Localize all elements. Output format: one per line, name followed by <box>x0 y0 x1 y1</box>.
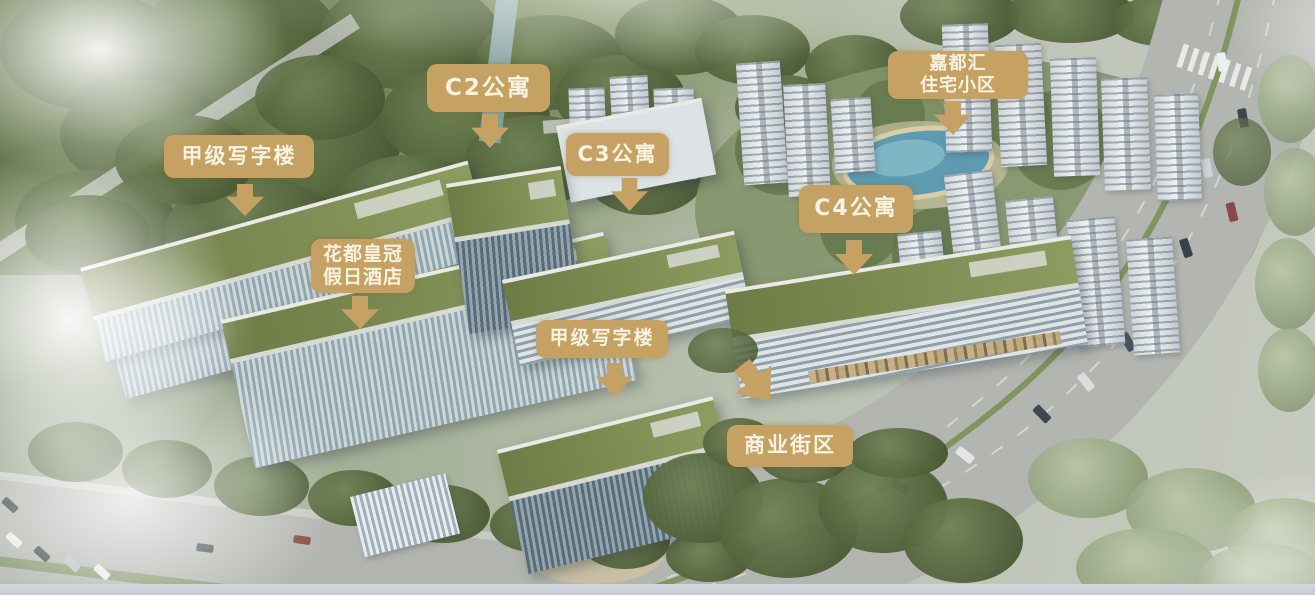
tree-cluster <box>1213 118 1271 186</box>
residential-tower <box>1154 93 1202 200</box>
label-huadu-crowne-plaza-hotel: 花都皇冠 假日酒店 <box>311 239 415 293</box>
aerial-rendering: 甲级写字楼 C2公寓 C3公寓 嘉都汇 住宅小区 C4公寓 花都皇冠 假日酒店 … <box>0 0 1315 595</box>
tree-cluster <box>848 428 948 478</box>
tree-cluster <box>1258 328 1315 412</box>
residential-tower <box>1050 57 1100 177</box>
label-grade-a-office-west: 甲级写字楼 <box>164 135 314 178</box>
label-jiaduhui-residential-community: 嘉都汇 住宅小区 <box>888 51 1028 99</box>
label-grade-a-office-center: 甲级写字楼 <box>536 320 668 358</box>
label-commercial-street-district: 商业街区 <box>727 425 853 467</box>
cloud-mist <box>60 250 260 410</box>
cloud-mist <box>1120 470 1315 595</box>
cloud-mist <box>1230 0 1315 120</box>
label-c4-apartment: C4公寓 <box>799 185 913 233</box>
label-c2-apartment: C2公寓 <box>427 64 550 112</box>
label-c3-apartment: C3公寓 <box>566 133 669 176</box>
residential-tower <box>736 61 788 186</box>
residential-tower <box>783 83 831 197</box>
residential-tower <box>1101 77 1151 191</box>
tree-cluster <box>1255 238 1315 330</box>
residential-tower <box>1126 237 1180 356</box>
tree-cluster <box>903 498 1023 583</box>
cloud-mist <box>240 0 1000 70</box>
residential-tower <box>830 97 875 174</box>
bottom-border-strip <box>0 584 1315 595</box>
